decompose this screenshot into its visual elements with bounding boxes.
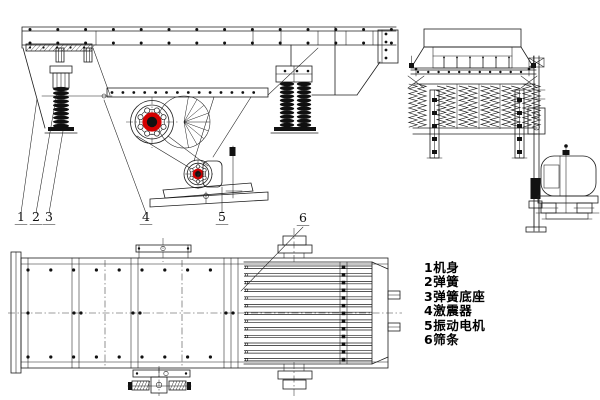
- adjust-rod-cap: [230, 147, 236, 156]
- spring-coil: [53, 120, 69, 124]
- channel-bolt: [517, 98, 522, 102]
- bolt-dot: [187, 247, 189, 249]
- bolt-dot: [112, 28, 115, 31]
- shaft-bracket-x: [528, 58, 545, 99]
- bolt-dot: [143, 91, 146, 94]
- bolt-dot: [564, 144, 568, 148]
- bolt-dot: [495, 57, 497, 59]
- legend-item-6: 6筛条: [424, 333, 485, 347]
- spring-coil: [297, 111, 311, 115]
- motor-base-end: [538, 196, 598, 203]
- bolt-dot: [140, 355, 143, 358]
- spring-coil: [280, 115, 294, 119]
- spring-coil: [53, 116, 69, 120]
- mount-post-lines: [59, 48, 90, 62]
- bolt-hole: [190, 176, 193, 179]
- spring-coil: [297, 94, 311, 98]
- channel-bolt: [517, 124, 522, 128]
- motor-body-end: [541, 156, 596, 196]
- spring-coil: [280, 94, 294, 98]
- support-pedestal-bottom: [283, 380, 306, 389]
- bar-bolt: [342, 350, 346, 354]
- bolt-dot: [209, 91, 212, 94]
- bolt-hole: [154, 108, 159, 113]
- exciter-hub: [147, 117, 157, 127]
- legend-item-3: 3弹簧底座: [424, 290, 485, 304]
- line: [409, 84, 417, 127]
- bolt-dot: [138, 311, 141, 314]
- bolt-dot: [72, 268, 75, 271]
- base-frame-lines: [536, 208, 599, 219]
- line: [184, 105, 204, 122]
- motor-bolt-nut: [563, 150, 570, 155]
- bar-bolt: [342, 296, 346, 300]
- bolt-hole: [203, 176, 206, 179]
- bolt-dot: [154, 91, 157, 94]
- bracket-pin: [164, 371, 168, 375]
- line: [468, 86, 477, 127]
- callout-5: 5: [218, 209, 226, 224]
- bolt-dot: [209, 268, 212, 271]
- bolt-dot: [132, 91, 135, 94]
- mount-bracket-top: [136, 245, 191, 252]
- legend-item-5: 5振动电机: [424, 319, 485, 333]
- bolt-dot: [385, 41, 388, 44]
- bolt-dot: [29, 28, 32, 31]
- support-pedestal-top-flange: [278, 245, 312, 253]
- bolt-hole: [145, 108, 150, 113]
- bolt-dot: [165, 91, 168, 94]
- spring-guide-lines: [57, 73, 65, 88]
- anchor-foot: [409, 63, 414, 68]
- bolt-dot: [56, 28, 59, 31]
- bolt-dot: [79, 311, 82, 314]
- channel-bolt: [432, 98, 437, 102]
- vibrating-feeder-drawing: 1 2 3 4 5 6: [0, 0, 600, 400]
- bolt-dot: [448, 71, 450, 73]
- bolt-dot: [140, 268, 143, 271]
- motor-bracket-bar: [133, 370, 190, 377]
- line: [481, 86, 490, 127]
- spring-coil: [280, 102, 294, 106]
- support-pedestal-top: [283, 236, 306, 245]
- bolt-dot: [186, 268, 189, 271]
- channel-bolt: [432, 111, 437, 115]
- spring-coil: [297, 82, 311, 86]
- bar-bolt: [342, 335, 346, 339]
- bolt-dot: [334, 28, 337, 31]
- bolt-dot: [224, 311, 227, 314]
- spring-hangers: [408, 68, 537, 88]
- bolt-dot: [140, 42, 143, 45]
- bar-bolt: [342, 319, 346, 323]
- end-view-repeats: [409, 57, 568, 155]
- callout-4: 4: [142, 209, 150, 224]
- bolt-dot: [279, 28, 282, 31]
- bolt-dot: [284, 70, 287, 73]
- spring-coil: [53, 124, 69, 128]
- spring-coil: [53, 103, 69, 107]
- bolt-dot: [118, 268, 121, 271]
- bolt-dot: [72, 355, 75, 358]
- spring-left: [53, 87, 69, 128]
- feeder-body-top: [22, 27, 396, 48]
- spring-coil: [280, 82, 294, 86]
- line: [184, 122, 204, 139]
- bolt-dot: [122, 91, 125, 94]
- technical-drawing-page: 1 2 3 4 5 6 1机身 2弹簧 3弹簧底座 4激震器 5振动电机 6筛条: [0, 0, 600, 400]
- bolt-hole: [138, 115, 143, 120]
- side-view: [22, 27, 398, 207]
- bolt-hole: [145, 131, 150, 136]
- bolt-hole: [161, 124, 166, 129]
- bolt-dot: [390, 42, 393, 45]
- shaft-base: [526, 227, 546, 232]
- spring-coil: [297, 86, 311, 90]
- spring-coil: [280, 90, 294, 94]
- spring-coil: [297, 123, 311, 127]
- spring-coil: [297, 115, 311, 119]
- bar-bolt: [342, 327, 346, 331]
- vibration-motor-weight: [169, 381, 186, 390]
- bolt-dot: [195, 42, 198, 45]
- bolt-dot: [223, 42, 226, 45]
- bolt-dot: [427, 71, 429, 73]
- spring-coil: [53, 91, 69, 95]
- bolt-dot: [95, 355, 98, 358]
- bolt-dot: [241, 91, 244, 94]
- callout-6: 6: [299, 210, 307, 225]
- bar-bolt: [342, 342, 346, 346]
- bolt-dot: [456, 57, 458, 59]
- spring-coil: [297, 119, 311, 123]
- bar-bolt: [342, 312, 346, 316]
- tab-lines: [388, 295, 400, 327]
- bolt-dot: [220, 91, 223, 94]
- bolt-dot: [307, 42, 310, 45]
- bolt-dot: [508, 57, 510, 59]
- frame-band: [411, 70, 536, 84]
- bolt-dot: [136, 372, 138, 374]
- bolt-dot: [469, 57, 471, 59]
- bolt-dot: [362, 28, 365, 31]
- end-view: [408, 29, 599, 232]
- bracket-legs: [139, 245, 188, 258]
- line: [511, 86, 520, 127]
- spring-coil: [53, 112, 69, 116]
- drive-shaft: [534, 56, 539, 231]
- bolt-dot: [307, 28, 310, 31]
- callout-1: 1: [17, 209, 25, 224]
- spring-coil: [53, 95, 69, 99]
- legend-item-4: 4激震器: [424, 304, 485, 318]
- spring-coil: [53, 87, 69, 91]
- bolt-dot: [390, 28, 393, 31]
- bolt-dot: [26, 355, 29, 358]
- bolt-dot: [49, 268, 52, 271]
- spring-coil: [297, 107, 311, 111]
- bolt-dot: [385, 33, 388, 36]
- bolt-dot: [334, 42, 337, 45]
- spring-cap-left: [50, 66, 72, 73]
- bolt-dot: [296, 70, 299, 73]
- bolt-dot: [163, 268, 166, 271]
- motor-junction-box: [544, 165, 559, 188]
- shaft-foot-block: [529, 201, 542, 208]
- line: [418, 84, 426, 127]
- bolt-dot: [185, 372, 187, 374]
- bolt-hole: [196, 180, 199, 183]
- callout-3: 3: [45, 209, 53, 224]
- bolt-dot: [479, 71, 481, 73]
- spring-coil: [280, 119, 294, 123]
- legend-item-2: 2弹簧: [424, 275, 485, 289]
- bolt-dot: [231, 311, 234, 314]
- body-ribs: [96, 31, 373, 45]
- bolt-dot: [385, 49, 388, 52]
- bolt-hole: [161, 115, 166, 120]
- bolt-dot: [385, 57, 388, 60]
- bolt-dot: [163, 355, 166, 358]
- bolt-dot: [499, 71, 501, 73]
- bolt-dot: [417, 71, 419, 73]
- channel-bolt: [432, 150, 437, 154]
- base-plate: [546, 213, 588, 219]
- bolt-dot: [468, 71, 470, 73]
- legend-item-1: 1机身: [424, 261, 485, 275]
- bolt-dot: [415, 68, 418, 71]
- line: [490, 86, 499, 127]
- inlet-slope: [23, 48, 45, 128]
- bolt-dot: [510, 71, 512, 73]
- spring-coil: [297, 102, 311, 106]
- bolt-dot: [168, 42, 171, 45]
- bolt-dot: [140, 28, 143, 31]
- bolt-dot: [198, 91, 201, 94]
- spring-coil: [280, 98, 294, 102]
- spring-coil: [280, 123, 294, 127]
- bolt-dot: [49, 355, 52, 358]
- bar-bolt: [342, 304, 346, 308]
- spring-right-a: [280, 82, 294, 127]
- legend: 1机身 2弹簧 3弹簧底座 4激震器 5振动电机 6筛条: [424, 261, 485, 347]
- bolt-hole: [196, 165, 199, 168]
- bolt-dot: [195, 28, 198, 31]
- bar-bolt: [342, 265, 346, 269]
- bolt-hole: [138, 124, 143, 129]
- bolt-dot: [489, 71, 491, 73]
- line: [437, 86, 446, 127]
- bolt-dot: [362, 42, 365, 45]
- line: [502, 86, 511, 127]
- bolt-dot: [251, 28, 254, 31]
- spring-coil: [280, 86, 294, 90]
- bolt-dot: [279, 42, 282, 45]
- channel-bolt: [432, 124, 437, 128]
- spring-bracket-lines: [276, 66, 312, 82]
- bolt-dot: [252, 91, 255, 94]
- top-view-repeats: [26, 247, 372, 390]
- spring-coil: [280, 107, 294, 111]
- bolt-dot: [29, 42, 32, 45]
- bolt-dot: [528, 68, 531, 71]
- channel-bolt: [517, 137, 522, 141]
- bar-bolt: [342, 289, 346, 293]
- spring-coil: [297, 98, 311, 102]
- line: [446, 86, 455, 127]
- bolt-dot: [443, 57, 445, 59]
- bolt-hole: [154, 131, 159, 136]
- bolt-dot: [168, 28, 171, 31]
- bolt-dot: [251, 42, 254, 45]
- bolt-dot: [26, 311, 29, 314]
- line: [184, 113, 208, 122]
- channel-bolt: [517, 150, 522, 154]
- support-pedestal-bottom-flange: [278, 371, 312, 379]
- spring-base-right: [274, 127, 316, 131]
- bolt-dot: [437, 71, 439, 73]
- bar-bolt: [342, 358, 346, 362]
- bar-bolt: [342, 273, 346, 277]
- callout-2: 2: [32, 209, 40, 224]
- end-plate: [378, 30, 398, 63]
- bolt-dot: [72, 311, 75, 314]
- anchor-bolts: [412, 56, 534, 63]
- bolt-dot: [209, 355, 212, 358]
- spring-right-b: [297, 82, 311, 127]
- hopper-top: [424, 29, 521, 47]
- bolt-dot: [84, 42, 87, 45]
- channel-bolt: [432, 137, 437, 141]
- bolt-dot: [223, 28, 226, 31]
- bolt-dot: [118, 355, 121, 358]
- bolt-dot: [84, 28, 87, 31]
- spring-rail: [413, 128, 537, 134]
- hopper-flare: [411, 47, 534, 68]
- channel-bolt: [517, 111, 522, 115]
- spring-coil: [280, 111, 294, 115]
- spring-coil: [297, 90, 311, 94]
- line: [459, 86, 468, 127]
- bolt-dot: [176, 91, 179, 94]
- bolt-dot: [95, 268, 98, 271]
- bolt-dot: [482, 57, 484, 59]
- bolt-dot: [112, 42, 115, 45]
- bolt-dot: [187, 91, 190, 94]
- callout-underlines: [15, 225, 309, 226]
- bar-bolt: [342, 281, 346, 285]
- bolt-dot: [186, 355, 189, 358]
- bolt-dot: [231, 91, 234, 94]
- bolt-dot: [56, 42, 59, 45]
- bolt-hole: [203, 169, 206, 172]
- bolt-dot: [111, 91, 114, 94]
- bolt-dot: [520, 71, 522, 73]
- bolt-dot: [131, 311, 134, 314]
- bolt-dot: [138, 247, 140, 249]
- bolt-dot: [26, 268, 29, 271]
- bolt-hole: [190, 169, 193, 172]
- spring-coil: [53, 107, 69, 111]
- bolt-dot: [307, 70, 310, 73]
- top-view: [8, 228, 402, 396]
- bolt-dot: [458, 71, 460, 73]
